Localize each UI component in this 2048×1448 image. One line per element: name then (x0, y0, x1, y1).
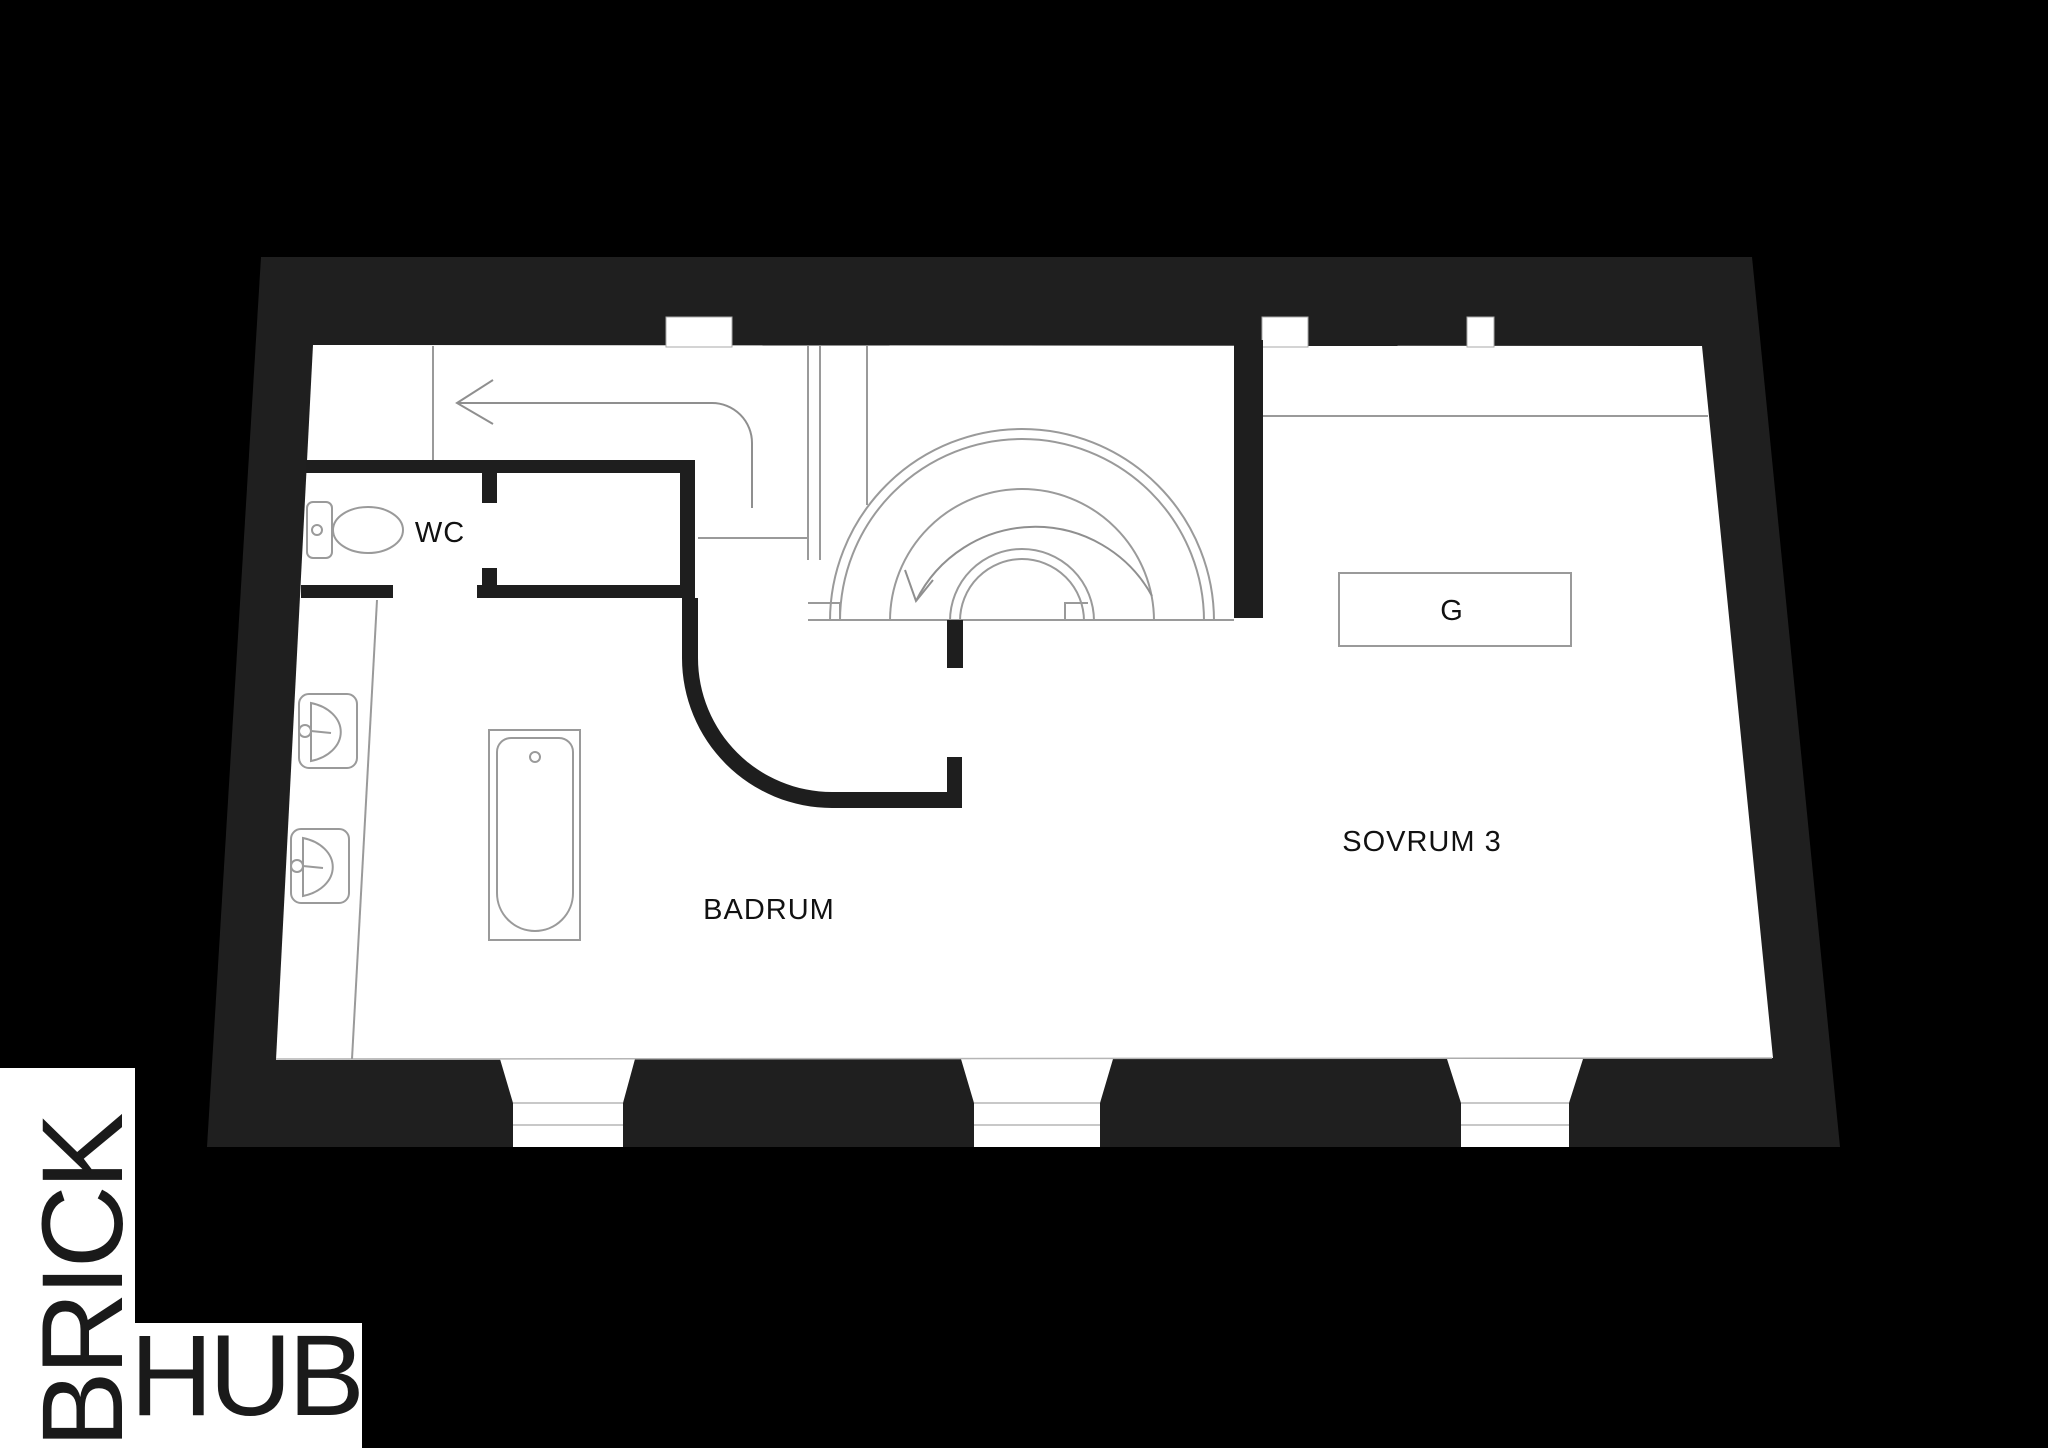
door-jamb-stub (947, 620, 963, 668)
window-opening-3 (1447, 1059, 1583, 1147)
room-label-badrum: BADRUM (703, 894, 835, 926)
window-opening-1 (500, 1059, 635, 1147)
room-label-wc: WC (415, 517, 465, 549)
watermark-hub: HUB (130, 1312, 361, 1440)
chimney-notch-1 (666, 317, 732, 347)
toilet-bowl (333, 507, 403, 553)
wc-bottom-wall-right (477, 585, 695, 598)
sink-faucet (299, 725, 311, 737)
wardrobe: G (1339, 573, 1571, 646)
sink-faucet (291, 860, 303, 872)
bathtub-drain (530, 752, 540, 762)
wc-bottom-wall-left (301, 585, 393, 598)
floor-edge-line (276, 1058, 1772, 1059)
wardrobe-label: G (1440, 595, 1464, 627)
bathtub (489, 730, 580, 940)
wc-partition-stub-bottom (482, 568, 497, 585)
wc-right-wall (680, 460, 695, 598)
room-label-sovrum: SOVRUM 3 (1342, 826, 1501, 858)
window-opening-2 (961, 1059, 1113, 1147)
toilet-button (312, 525, 322, 535)
watermark-brick: BRICK (19, 1113, 147, 1448)
toilet (307, 502, 403, 558)
sink-1 (299, 694, 357, 768)
sovrum-left-wall (1234, 340, 1263, 618)
floor-plan-canvas: G WC BADRUM SOVRUM 3 BRICK HUB (0, 0, 2048, 1448)
bathtub-basin (497, 738, 573, 931)
floor-interior (276, 345, 1773, 1060)
wc-partition-stub-top (482, 473, 497, 503)
floor-plan-drawing: G WC BADRUM SOVRUM 3 BRICK HUB (0, 0, 2048, 1448)
wc-top-wall (306, 460, 695, 473)
chimney-notch-2 (1262, 317, 1308, 347)
sink-2 (291, 829, 349, 903)
chimney-notch-3 (1467, 317, 1494, 347)
